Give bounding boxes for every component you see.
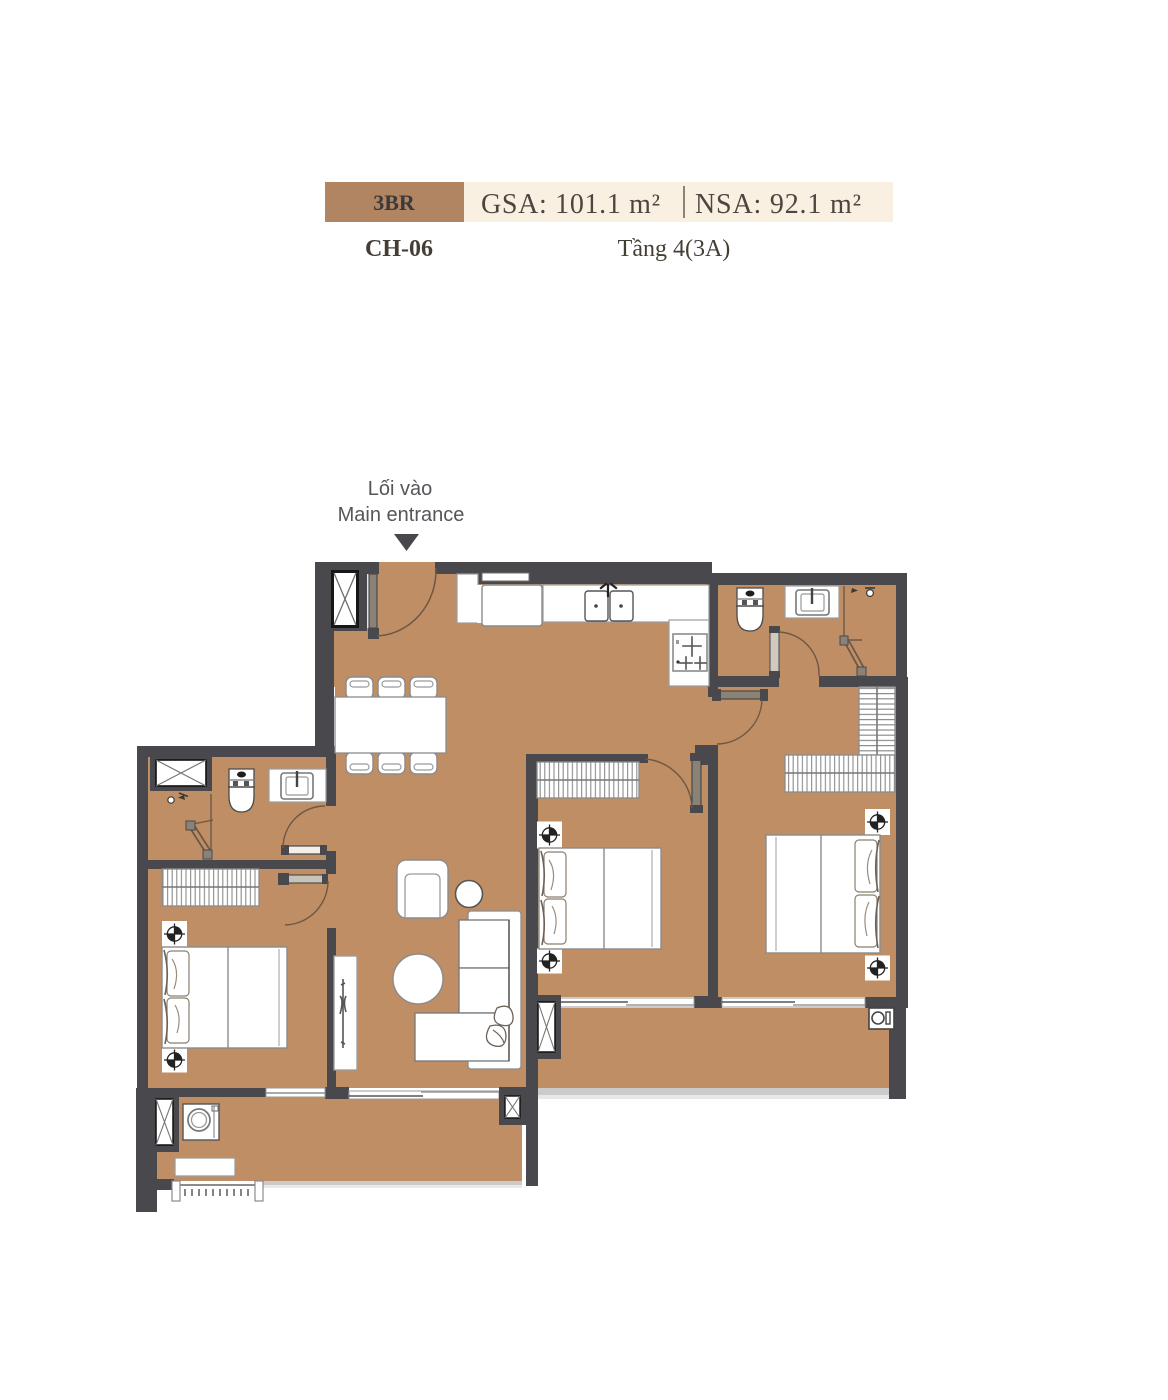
svg-text:GSA: 101.1 m²: GSA: 101.1 m² bbox=[481, 189, 660, 220]
svg-text:Lối vào: Lối vào bbox=[368, 478, 433, 500]
svg-text:3BR: 3BR bbox=[373, 190, 416, 215]
svg-text:Tầng 4(3A): Tầng 4(3A) bbox=[618, 236, 731, 262]
svg-text:NSA: 92.1 m²: NSA: 92.1 m² bbox=[695, 189, 861, 220]
svg-text:Main entrance: Main entrance bbox=[338, 504, 465, 526]
svg-text:CH-06: CH-06 bbox=[365, 236, 433, 262]
